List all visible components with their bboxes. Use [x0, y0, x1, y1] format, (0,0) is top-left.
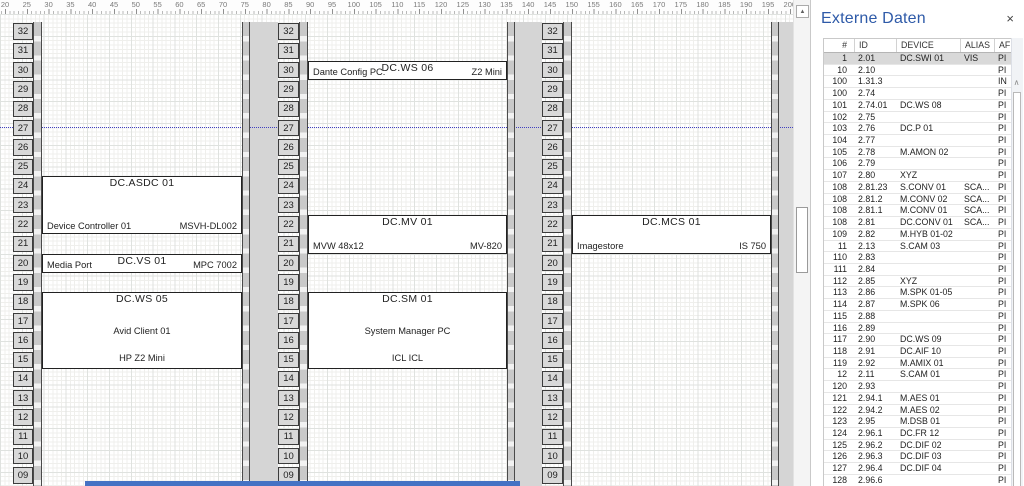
table-cell: M.SPK 06	[896, 299, 960, 310]
table-cell: 119	[824, 358, 854, 369]
table-cell	[960, 475, 994, 486]
table-row[interactable]: 1082.81DC.CONV 01SCA...PI	[824, 217, 1014, 229]
equipment-block[interactable]: DC.SM 01System Manager PCICL ICL	[308, 292, 507, 369]
equipment-label-right: IS 750	[739, 241, 766, 251]
rack-unit-number: 23	[13, 197, 33, 213]
table-cell: 108	[824, 182, 854, 193]
rack-unit-number: 31	[13, 43, 33, 59]
table-cell: M.HYB 01-02	[896, 229, 960, 240]
rack-unit-number: 22	[278, 216, 299, 232]
table-row[interactable]: 1162.89PI	[824, 323, 1014, 335]
table-row[interactable]: 1252.96.2DC.DIF 02PI	[824, 440, 1014, 452]
table-cell: 111	[824, 264, 854, 275]
table-cell	[960, 463, 994, 474]
table-cell	[960, 416, 994, 427]
rack-unit-number: 24	[542, 178, 563, 194]
ruler-label: 135	[497, 0, 515, 9]
table-header-row[interactable]: #IDDEVICEALIASAF	[824, 39, 1014, 53]
table-cell: 101	[824, 100, 854, 111]
table-cell: 2.11	[854, 369, 896, 380]
table-header-cell[interactable]: ALIAS	[960, 39, 994, 52]
table-cell	[960, 100, 994, 111]
table-cell	[896, 264, 960, 275]
external-data-panel: Externe Daten × #IDDEVICEALIASAF12.01DC.…	[810, 0, 1024, 486]
ruler-label: 190	[737, 0, 755, 9]
rack-unit-number: 29	[13, 81, 33, 97]
rack-unit-number: 21	[542, 236, 563, 252]
table-row[interactable]: 1082.81.2M.CONV 02SCA...PI	[824, 194, 1014, 206]
rack-unit-number: 23	[278, 197, 299, 213]
table-cell: 122	[824, 405, 854, 416]
table-cell: 2.10	[854, 65, 896, 76]
table-cell: 108	[824, 194, 854, 205]
rack-unit-number: 28	[13, 101, 33, 117]
ruler-label: 120	[432, 0, 450, 9]
table-cell	[896, 311, 960, 322]
table-cell: S.CONV 01	[896, 182, 960, 193]
table-cell	[960, 358, 994, 369]
ruler-label: 195	[759, 0, 777, 9]
vertical-scrollbar-thumb[interactable]	[796, 207, 808, 273]
table-scrollbar-thumb[interactable]	[1013, 92, 1021, 486]
table-row[interactable]: 1132.86M.SPK 01-05PI	[824, 287, 1014, 299]
rack-unit-number: 26	[542, 139, 563, 155]
table-row[interactable]: 1232.95M.DSB 01PI	[824, 416, 1014, 428]
table-cell: DC.WS 09	[896, 334, 960, 345]
table-cell	[960, 241, 994, 252]
ruler-label: 50	[127, 0, 145, 9]
table-header-cell[interactable]: #	[824, 39, 854, 52]
table-cell	[960, 451, 994, 462]
rack-unit-number: 24	[13, 178, 33, 194]
rack-unit-number: 28	[278, 101, 299, 117]
table-cell: SCA...	[960, 217, 994, 228]
table-cell: 2.82	[854, 229, 896, 240]
ruler-label: 60	[170, 0, 188, 9]
rack-gap	[250, 22, 278, 486]
scroll-up-icon[interactable]: ▲	[796, 5, 809, 18]
table-cell: 120	[824, 381, 854, 392]
table-cell: 2.79	[854, 158, 896, 169]
ruler-label: 105	[367, 0, 385, 9]
equipment-block[interactable]: DC.VS 01Media PortMPC 7002	[42, 254, 242, 273]
equipment-block[interactable]: DC.WS 06Dante Config PC.Z2 Mini	[308, 61, 507, 80]
page-break-line	[0, 127, 793, 128]
rack-unit-number: 32	[13, 23, 33, 39]
table-cell: M.AMON 02	[896, 147, 960, 158]
table-cell: 117	[824, 334, 854, 345]
table-cell: 1.31.3	[854, 76, 896, 87]
equipment-label-bottom: HP Z2 Mini	[43, 353, 241, 363]
ruler-label: 180	[694, 0, 712, 9]
table-cell: 118	[824, 346, 854, 357]
table-cell: VIS	[960, 53, 994, 64]
rack-unit-number: 15	[542, 352, 563, 368]
rack-unit-number: 30	[542, 62, 563, 78]
rack-unit-number: 13	[278, 390, 299, 406]
rack-gap	[515, 22, 542, 486]
table-cell	[960, 76, 994, 87]
rack-unit-number: 20	[278, 255, 299, 271]
rack-unit-number: 21	[278, 236, 299, 252]
table-row[interactable]: 102.10PI	[824, 65, 1014, 77]
table-row[interactable]: 1032.76DC.P 01PI	[824, 123, 1014, 135]
table-row[interactable]: 1002.74PI	[824, 88, 1014, 100]
table-cell: M.DSB 01	[896, 416, 960, 427]
table-cell: DC.DIF 04	[896, 463, 960, 474]
table-cell: M.AES 02	[896, 405, 960, 416]
rack-unit-number: 21	[13, 236, 33, 252]
table-cell: 2.88	[854, 311, 896, 322]
ruler-label: 90	[301, 0, 319, 9]
table-cell	[960, 323, 994, 334]
table-cell	[960, 264, 994, 275]
rack-unit-number: 10	[278, 448, 299, 464]
equipment-block[interactable]: DC.MCS 01ImagestoreIS 750	[572, 215, 771, 254]
ruler-label: 40	[83, 0, 101, 9]
table-cell: S.CAM 01	[896, 369, 960, 380]
table-cell: 100	[824, 88, 854, 99]
table-cell: 2.74.01	[854, 100, 896, 111]
table-row[interactable]: 1001.31.3IN	[824, 76, 1014, 88]
equipment-title: DC.SM 01	[309, 293, 506, 305]
table-cell: 2.81.23	[854, 182, 896, 193]
table-cell: DC.WS 08	[896, 100, 960, 111]
table-cell	[896, 112, 960, 123]
rack-unit-number: 09	[542, 467, 563, 483]
table-cell: XYZ	[896, 276, 960, 287]
table-header-cell[interactable]: DEVICE	[896, 39, 960, 52]
app-window: 3231302928272625242322212019181716151413…	[0, 0, 1024, 486]
ruler-label: 200	[781, 0, 793, 9]
rack-unit-number: 16	[278, 332, 299, 348]
ruler-label: 45	[105, 0, 123, 9]
equipment-label-right: MV-820	[470, 241, 502, 251]
rack-unit-number: 11	[278, 429, 299, 445]
table-row[interactable]: 12.01DC.SWI 01VISPI	[824, 53, 1014, 65]
table-row[interactable]: 1172.90DC.WS 09PI	[824, 334, 1014, 346]
table-cell: DC.DIF 02	[896, 440, 960, 451]
equipment-label-left: Device Controller 01	[47, 221, 131, 231]
table-cell	[896, 158, 960, 169]
table-row[interactable]: 1082.81.1M.CONV 01SCA...PI	[824, 205, 1014, 217]
table-row[interactable]: 1142.87M.SPK 06PI	[824, 299, 1014, 311]
table-row[interactable]: 1182.91DC.AIF 10PI	[824, 346, 1014, 358]
table-cell	[960, 287, 994, 298]
table-row[interactable]: 1242.96.1DC.FR 12PI	[824, 428, 1014, 440]
rack-unit-number: 30	[278, 62, 299, 78]
rack-unit-number: 11	[542, 429, 563, 445]
table-cell: 2.77	[854, 135, 896, 146]
horizontal-ruler: 2025303540455055606570758085909510010511…	[0, 0, 793, 14]
rack-rail-right	[242, 22, 250, 486]
table-cell	[896, 323, 960, 334]
ruler-label: 160	[606, 0, 624, 9]
equipment-title: DC.WS 05	[43, 293, 241, 305]
table-cell: 12	[824, 369, 854, 380]
table-cell: M.AES 01	[896, 393, 960, 404]
ruler-label: 65	[192, 0, 210, 9]
table-row[interactable]: 1262.96.3DC.DIF 03PI	[824, 451, 1014, 463]
table-row[interactable]: 1122.85XYZPI	[824, 276, 1014, 288]
table-cell: 107	[824, 170, 854, 181]
rack-unit-number: 25	[278, 159, 299, 175]
table-row[interactable]: 1082.81.23S.CONV 01SCA...PI	[824, 182, 1014, 194]
ruler-label: 170	[650, 0, 668, 9]
rack-unit-number: 13	[13, 390, 33, 406]
table-row[interactable]: 1152.88PI	[824, 311, 1014, 323]
table-cell	[960, 276, 994, 287]
rack-unit-number: 15	[278, 352, 299, 368]
table-row[interactable]: 1062.79PI	[824, 158, 1014, 170]
table-row[interactable]: 1202.93PI	[824, 381, 1014, 393]
rack-unit-number: 18	[278, 294, 299, 310]
table-cell	[896, 65, 960, 76]
rack-unit-number: 22	[13, 216, 33, 232]
table-cell	[960, 147, 994, 158]
table-cell: 2.94.1	[854, 393, 896, 404]
table-cell: 2.93	[854, 381, 896, 392]
equipment-block[interactable]: DC.MV 01MVW 48x12MV-820	[308, 215, 507, 254]
table-row[interactable]: 1022.75PI	[824, 112, 1014, 124]
table-cell: 2.87	[854, 299, 896, 310]
table-cell: 2.78	[854, 147, 896, 158]
table-cell: 109	[824, 229, 854, 240]
table-cell: 10	[824, 65, 854, 76]
rack-unit-number: 17	[13, 313, 33, 329]
ruler-label: 85	[279, 0, 297, 9]
table-cell: DC.SWI 01	[896, 53, 960, 64]
table-cell: 113	[824, 287, 854, 298]
table-cell: M.AMIX 01	[896, 358, 960, 369]
rack-unit-number: 12	[278, 409, 299, 425]
rack-rail-right	[771, 22, 779, 486]
table-cell: DC.P 01	[896, 123, 960, 134]
table-cell: 2.75	[854, 112, 896, 123]
table-cell: 2.89	[854, 323, 896, 334]
ruler-label: 35	[61, 0, 79, 9]
equipment-label-bottom: ICL ICL	[309, 353, 506, 363]
ruler-label: 185	[715, 0, 733, 9]
rack-unit-number: 19	[278, 274, 299, 290]
equipment-title: DC.MCS 01	[573, 216, 770, 228]
table-cell	[960, 170, 994, 181]
table-cell: 103	[824, 123, 854, 134]
rack-unit-number: 31	[542, 43, 563, 59]
table-cell: 2.96.6	[854, 475, 896, 486]
rack-unit-number: 22	[542, 216, 563, 232]
rack-unit-number: 20	[13, 255, 33, 271]
table-cell: 106	[824, 158, 854, 169]
table-cell	[960, 393, 994, 404]
table-cell	[960, 346, 994, 357]
rack-unit-number: 17	[278, 313, 299, 329]
rack-unit-number: 23	[542, 197, 563, 213]
ruler-label: 175	[672, 0, 690, 9]
table-cell	[960, 381, 994, 392]
table-cell: 2.90	[854, 334, 896, 345]
equipment-label-middle: Avid Client 01	[43, 326, 241, 336]
table-cell: 2.96.3	[854, 451, 896, 462]
table-cell	[960, 123, 994, 134]
table-cell: 112	[824, 276, 854, 287]
ruler-label: 145	[541, 0, 559, 9]
table-cell: 2.85	[854, 276, 896, 287]
rack-gap	[779, 22, 793, 486]
equipment-label-right: Z2 Mini	[472, 67, 502, 77]
drawing-grid: 3231302928272625242322212019181716151413…	[0, 14, 793, 486]
ruler-label: 130	[476, 0, 494, 9]
table-cell: 2.92	[854, 358, 896, 369]
table-scrollbar[interactable]: ∧	[1011, 38, 1023, 486]
horizontal-scrollbar-thumb[interactable]	[85, 481, 520, 486]
table-cell	[896, 88, 960, 99]
table-cell	[960, 405, 994, 416]
table-cell	[960, 88, 994, 99]
table-cell: 123	[824, 416, 854, 427]
table-header-cell[interactable]: ID	[854, 39, 896, 52]
table-cell: 116	[824, 323, 854, 334]
rack-unit-number: 28	[542, 101, 563, 117]
table-row[interactable]: 122.11S.CAM 01PI	[824, 369, 1014, 381]
table-cell	[960, 158, 994, 169]
ruler-label: 75	[236, 0, 254, 9]
rack-unit-number: 31	[278, 43, 299, 59]
ruler-label: 125	[454, 0, 472, 9]
table-cell	[960, 334, 994, 345]
ruler-label: 20	[0, 0, 14, 9]
table-cell: 2.01	[854, 53, 896, 64]
ruler-label: 100	[345, 0, 363, 9]
rack-unit-number: 15	[13, 352, 33, 368]
table-cell: DC.AIF 10	[896, 346, 960, 357]
rack-unit-number: 27	[278, 120, 299, 136]
table-cell: S.CAM 03	[896, 241, 960, 252]
table-cell: 2.96.4	[854, 463, 896, 474]
rack-unit-number: 26	[278, 139, 299, 155]
ruler-label: 155	[585, 0, 603, 9]
ruler-label: 150	[563, 0, 581, 9]
close-icon[interactable]: ×	[1006, 12, 1014, 25]
table-cell: M.CONV 01	[896, 205, 960, 216]
table-cell	[960, 440, 994, 451]
rack-unit-number: 14	[542, 371, 563, 387]
table-row[interactable]: 1222.94.2M.AES 02PI	[824, 405, 1014, 417]
table-cell	[896, 76, 960, 87]
table-cell	[960, 428, 994, 439]
rack-rail-right	[507, 22, 515, 486]
table-cell: 110	[824, 252, 854, 263]
ruler-label: 115	[410, 0, 428, 9]
table-cell: 108	[824, 217, 854, 228]
rack-unit-number: 13	[542, 390, 563, 406]
table-cell	[960, 135, 994, 146]
rack-unit-number: 12	[13, 409, 33, 425]
table-cell: DC.FR 12	[896, 428, 960, 439]
table-cell	[896, 381, 960, 392]
equipment-title: DC.ASDC 01	[43, 177, 241, 189]
rack-unit-number: 16	[542, 332, 563, 348]
rack-rail-left	[299, 22, 308, 486]
table-cell: DC.DIF 03	[896, 451, 960, 462]
table-row[interactable]: 1282.96.6PI	[824, 475, 1014, 486]
table-scroll-up-icon[interactable]: ∧	[1012, 78, 1021, 88]
table-cell: SCA...	[960, 205, 994, 216]
rack-unit-number: 18	[13, 294, 33, 310]
table-cell: 2.81	[854, 217, 896, 228]
drawing-canvas-area: 3231302928272625242322212019181716151413…	[0, 0, 793, 486]
equipment-label-right: MPC 7002	[193, 260, 237, 270]
rack-unit-number: 29	[278, 81, 299, 97]
table-cell	[960, 112, 994, 123]
rack-rail-left	[563, 22, 572, 486]
table-cell: 126	[824, 451, 854, 462]
equipment-label-left: Media Port	[47, 260, 92, 270]
table-row[interactable]: 1012.74.01DC.WS 08PI	[824, 100, 1014, 112]
panel-title: Externe Daten	[821, 10, 926, 28]
table-row[interactable]: 1042.77PI	[824, 135, 1014, 147]
table-row[interactable]: 1102.83PI	[824, 252, 1014, 264]
table-cell: 100	[824, 76, 854, 87]
table-cell	[896, 475, 960, 486]
table-cell: SCA...	[960, 194, 994, 205]
rack-unit-number: 16	[13, 332, 33, 348]
equipment-block[interactable]: DC.WS 05Avid Client 01HP Z2 Mini	[42, 292, 242, 369]
vertical-scrollbar[interactable]: ▲	[793, 0, 811, 486]
rack-unit-number: 32	[542, 23, 563, 39]
rack-unit-number: 14	[13, 371, 33, 387]
table-cell: SCA...	[960, 182, 994, 193]
equipment-label-right: MSVH-DL002	[180, 221, 237, 231]
table-row[interactable]: 1212.94.1M.AES 01PI	[824, 393, 1014, 405]
table-cell: 2.86	[854, 287, 896, 298]
rack-unit-number: 29	[542, 81, 563, 97]
table-row[interactable]: 1052.78M.AMON 02PI	[824, 147, 1014, 159]
table-row[interactable]: 1092.82M.HYB 01-02PI	[824, 229, 1014, 241]
table-cell: 2.76	[854, 123, 896, 134]
table-cell: 114	[824, 299, 854, 310]
rack-unit-number: 25	[13, 159, 33, 175]
table-cell: 125	[824, 440, 854, 451]
table-row[interactable]: 1112.84PI	[824, 264, 1014, 276]
rack-unit-number: 10	[542, 448, 563, 464]
table-cell	[896, 135, 960, 146]
table-row[interactable]: 112.13S.CAM 03PI	[824, 241, 1014, 253]
equipment-label-left: Dante Config PC.	[313, 67, 385, 77]
table-cell: 104	[824, 135, 854, 146]
table-cell: 2.91	[854, 346, 896, 357]
table-cell: 2.13	[854, 241, 896, 252]
table-cell	[960, 252, 994, 263]
equipment-label-left: MVW 48x12	[313, 241, 364, 251]
table-cell: 2.96.1	[854, 428, 896, 439]
table-cell: 127	[824, 463, 854, 474]
table-cell: 2.81.2	[854, 194, 896, 205]
equipment-block[interactable]: DC.ASDC 01Device Controller 01MSVH-DL002	[42, 176, 242, 234]
table-cell: 128	[824, 475, 854, 486]
table-row[interactable]: 1272.96.4DC.DIF 04PI	[824, 463, 1014, 475]
table-cell: 2.74	[854, 88, 896, 99]
rack-unit-number: 24	[278, 178, 299, 194]
table-cell: 2.84	[854, 264, 896, 275]
table-cell: 124	[824, 428, 854, 439]
rack-unit-number: 20	[542, 255, 563, 271]
rack-unit-number: 14	[278, 371, 299, 387]
ruler-label: 140	[519, 0, 537, 9]
table-row[interactable]: 1072.80XYZPI	[824, 170, 1014, 182]
rack-unit-number: 27	[13, 120, 33, 136]
table-row[interactable]: 1192.92M.AMIX 01PI	[824, 358, 1014, 370]
